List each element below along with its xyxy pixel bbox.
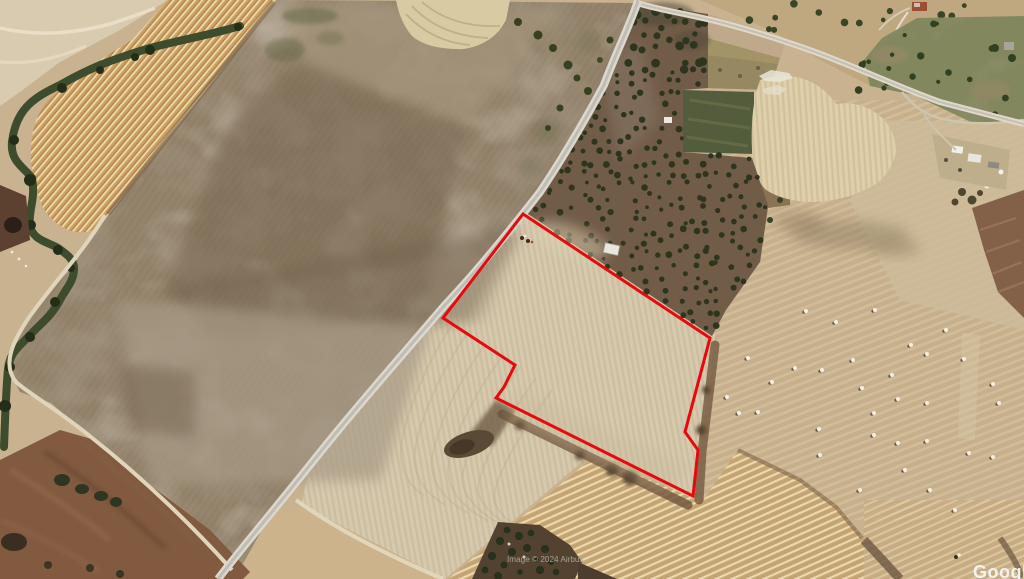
svg-text:Google: Google: [973, 562, 1024, 579]
svg-text:Image © 2024 Airbus: Image © 2024 Airbus: [507, 555, 584, 564]
